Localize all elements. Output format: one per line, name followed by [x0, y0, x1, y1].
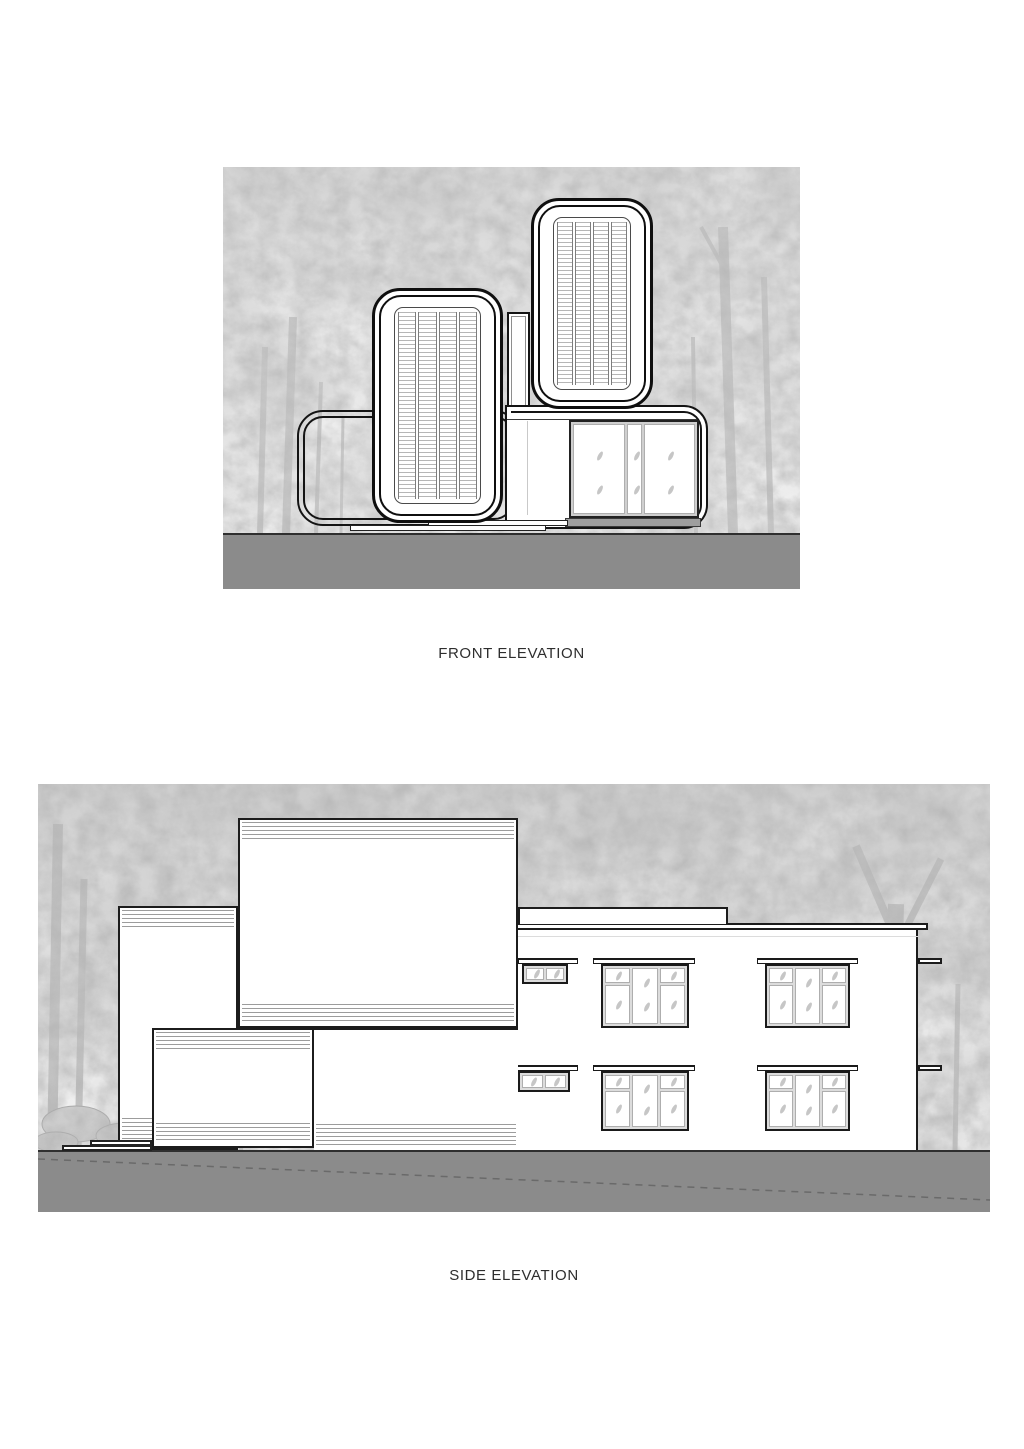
small-window — [518, 1071, 570, 1092]
side-elevation-panel — [38, 784, 990, 1214]
louver-column — [593, 222, 609, 385]
hatch-band — [242, 822, 514, 842]
lower-wall — [314, 1028, 518, 1150]
large-window — [601, 1071, 689, 1131]
louver-screen — [553, 217, 631, 390]
hatch-band — [316, 1124, 516, 1146]
hatch-band — [242, 1004, 514, 1024]
window-pane — [605, 985, 630, 1024]
large-window — [765, 964, 850, 1028]
louver-module-frame — [379, 295, 496, 516]
hatch-band — [122, 910, 234, 930]
window-pane — [769, 968, 793, 983]
grade-dash-line — [38, 1152, 990, 1212]
louver-column — [611, 222, 627, 385]
front-elevation-panel — [223, 167, 800, 589]
corridor-inner-line — [511, 316, 526, 408]
louver-module-left — [372, 288, 503, 523]
front-elevation-caption: FRONT ELEVATION — [223, 645, 800, 662]
louver-column — [459, 312, 477, 499]
hatch-band — [156, 1032, 310, 1052]
large-upper-box — [238, 818, 518, 1028]
window-pane — [526, 968, 544, 980]
large-window — [601, 964, 689, 1028]
window-pane — [660, 968, 685, 983]
window-pane — [605, 1091, 630, 1127]
window-pane — [795, 1075, 819, 1127]
louver-module-frame — [538, 205, 646, 402]
roof-shadow-line — [516, 936, 918, 937]
ground-side — [38, 1150, 990, 1212]
drawing-sheet: FRONT ELEVATION — [0, 0, 1024, 1449]
glazed-module — [505, 405, 708, 529]
louver-module-right — [531, 198, 653, 409]
window-pane — [660, 1091, 685, 1127]
side-ledge-upper — [918, 958, 942, 964]
window-pane — [660, 985, 685, 1024]
ground-front — [223, 533, 800, 589]
glazed-module-base-strip — [565, 518, 701, 527]
window-pane — [822, 1075, 846, 1089]
window-pane — [605, 1075, 630, 1089]
glass-pane — [573, 424, 625, 514]
window-pane — [546, 968, 564, 980]
side-elevation-caption: SIDE ELEVATION — [38, 1267, 990, 1284]
corridor-link — [507, 312, 530, 408]
louver-column — [557, 222, 573, 385]
glass-pane — [644, 424, 695, 514]
small-window — [522, 964, 568, 984]
parapet-box — [518, 907, 728, 924]
louver-column — [575, 222, 591, 385]
side-ledge-lower — [918, 1065, 942, 1071]
window-pane — [769, 1091, 793, 1127]
window-pane — [605, 968, 630, 983]
window-pane — [795, 968, 819, 1024]
window-pane — [822, 985, 846, 1024]
window-pane — [632, 1075, 657, 1127]
window-pane — [822, 1091, 846, 1127]
window-pane — [769, 1075, 793, 1089]
window-pane — [522, 1075, 543, 1088]
glazed-module-wall-seam — [527, 421, 528, 515]
entry-step-lower — [62, 1145, 152, 1151]
louver-screen — [394, 307, 481, 504]
glass-pane — [627, 424, 642, 514]
glass-unit — [569, 420, 699, 518]
lower-left-box — [152, 1028, 314, 1148]
window-pane — [660, 1075, 685, 1089]
window-pane — [769, 985, 793, 1024]
hatch-band — [156, 1123, 310, 1143]
window-pane — [545, 1075, 566, 1088]
louver-column — [418, 312, 436, 499]
window-pane — [822, 968, 846, 983]
foundation-plate — [350, 525, 546, 531]
window-pane — [632, 968, 657, 1024]
louver-column — [439, 312, 457, 499]
roof-cap — [516, 923, 928, 930]
large-window — [765, 1071, 850, 1131]
louver-column — [398, 312, 416, 499]
